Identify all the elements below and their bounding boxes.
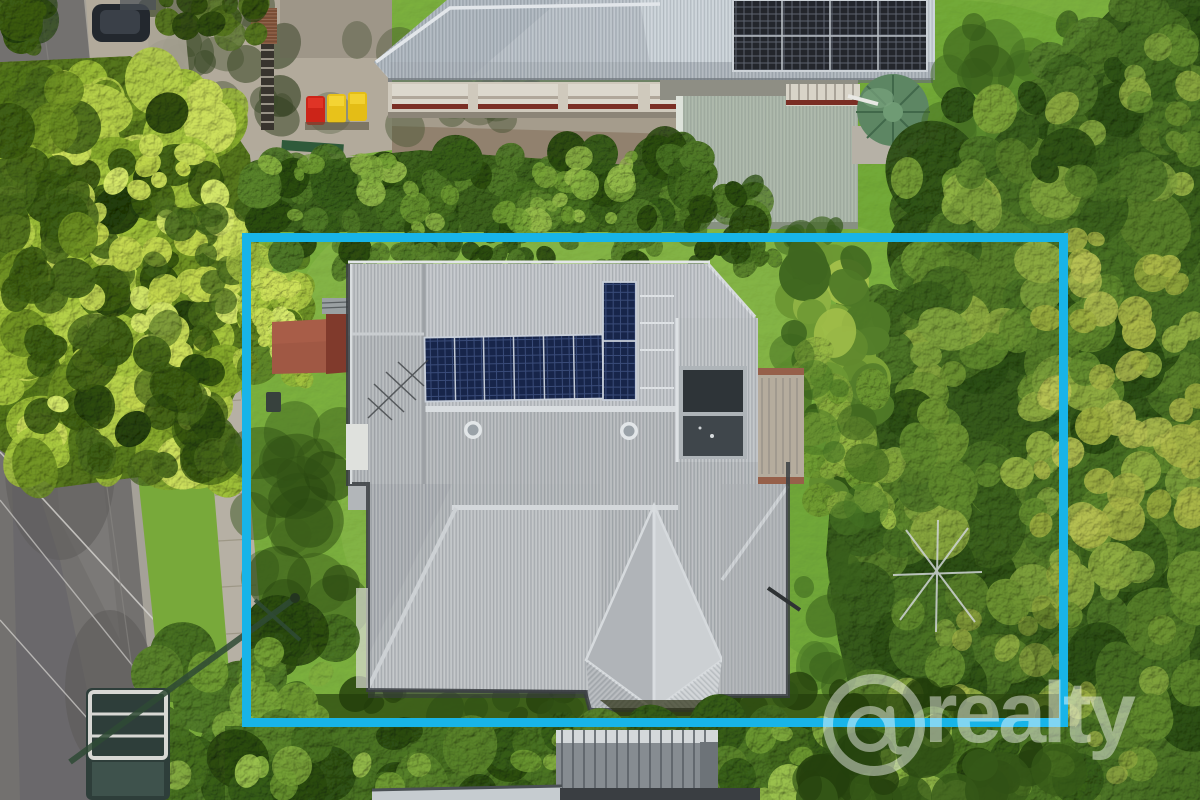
svg-text:realty: realty — [924, 665, 1136, 761]
